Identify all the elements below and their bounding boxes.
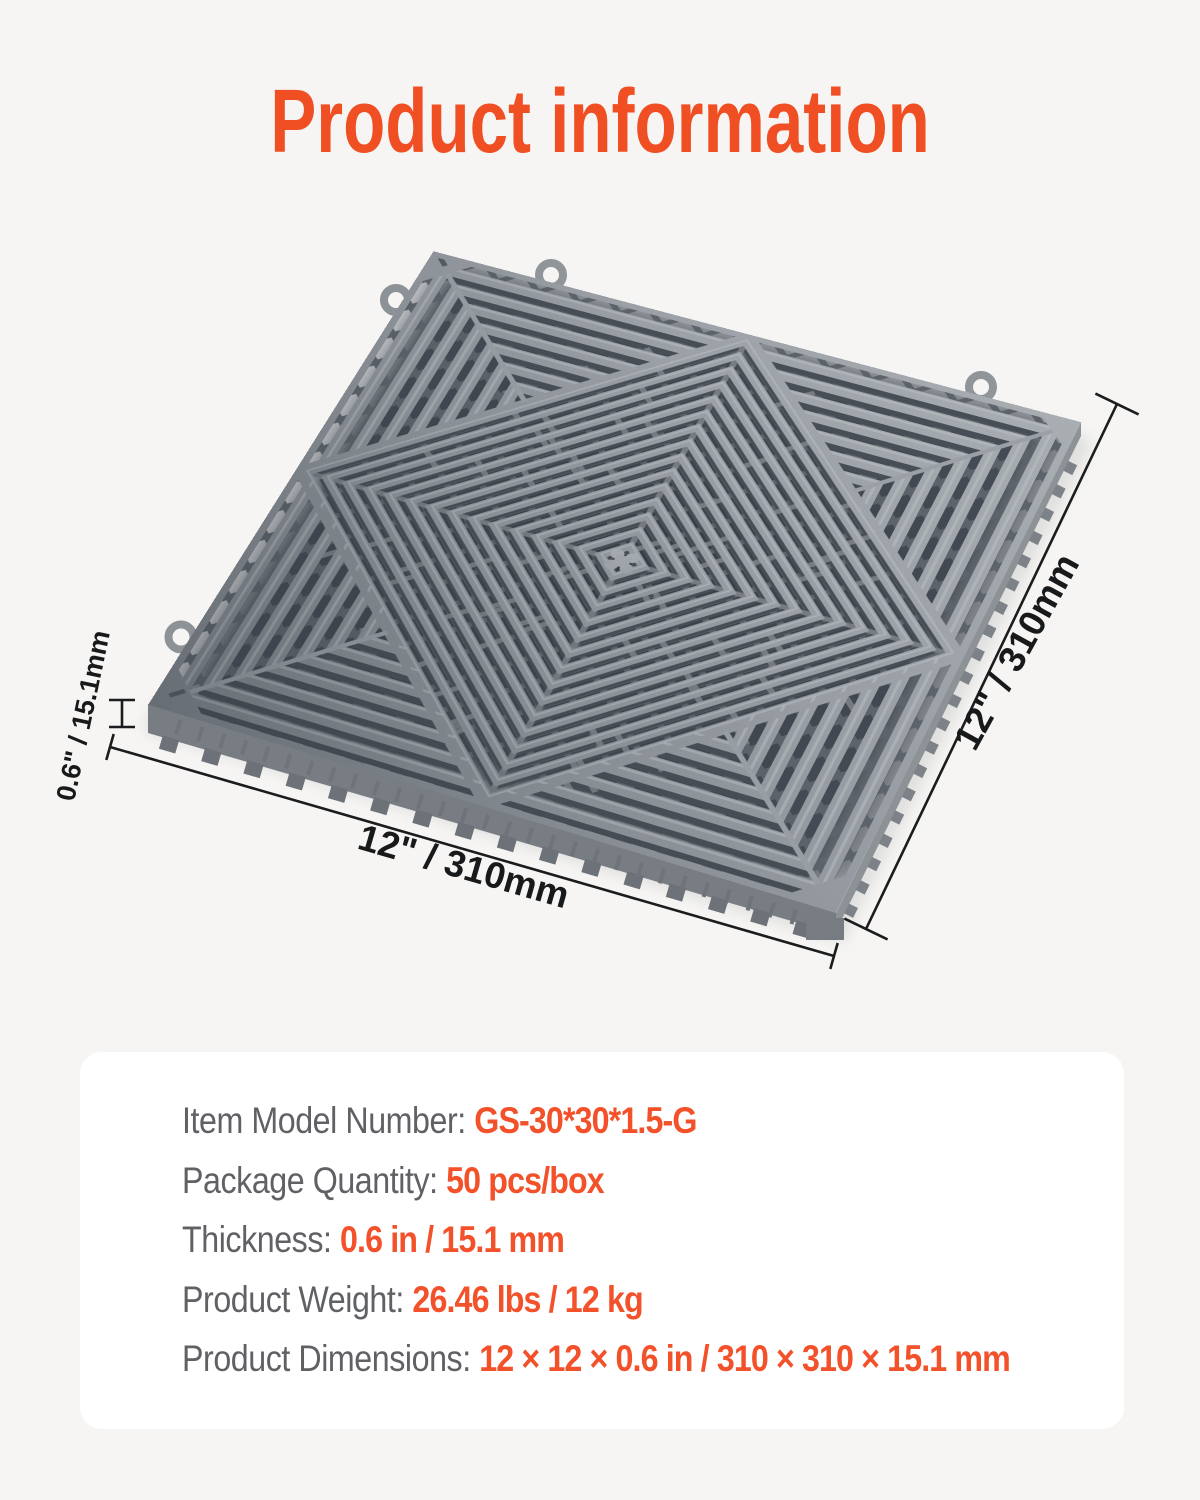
- svg-text:0.6" / 15.1mm: 0.6" / 15.1mm: [50, 628, 115, 804]
- svg-text:12" / 310mm: 12" / 310mm: [354, 817, 574, 917]
- svg-text:12" / 310mm: 12" / 310mm: [946, 547, 1087, 757]
